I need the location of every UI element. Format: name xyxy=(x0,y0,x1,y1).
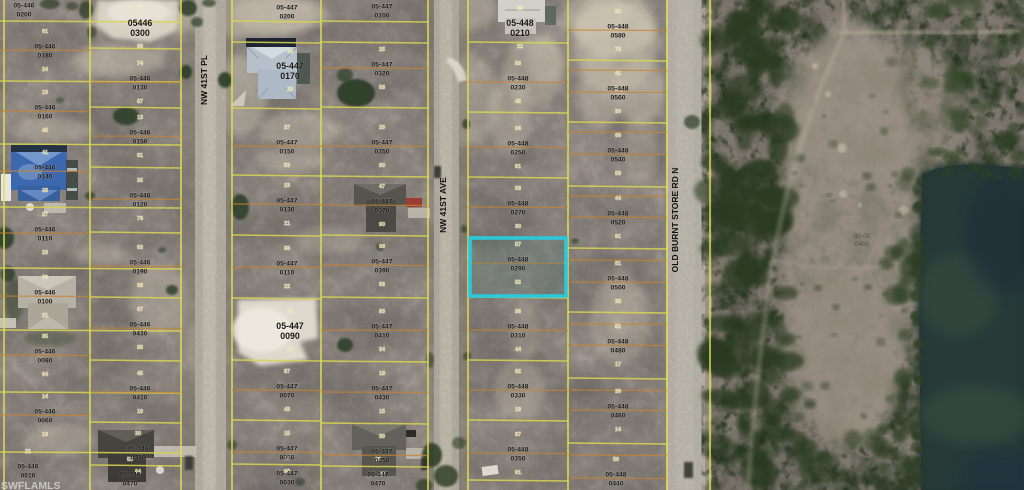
svg-text:38: 38 xyxy=(42,188,48,194)
svg-text:92: 92 xyxy=(515,369,521,375)
svg-text:69: 69 xyxy=(615,133,621,139)
svg-text:05-446: 05-446 xyxy=(129,322,150,329)
svg-text:39: 39 xyxy=(379,434,385,440)
svg-text:15: 15 xyxy=(284,431,290,437)
svg-text:18: 18 xyxy=(379,371,385,377)
svg-text:0450: 0450 xyxy=(374,458,389,465)
svg-text:0430: 0430 xyxy=(374,395,389,402)
svg-text:55: 55 xyxy=(515,280,521,286)
svg-text:0470: 0470 xyxy=(370,481,385,488)
svg-text:39: 39 xyxy=(137,44,143,50)
svg-text:56: 56 xyxy=(515,186,521,192)
svg-text:90: 90 xyxy=(379,222,385,228)
svg-text:39: 39 xyxy=(517,6,523,12)
svg-text:05-447: 05-447 xyxy=(276,471,297,478)
svg-text:78: 78 xyxy=(615,47,621,53)
svg-text:0210: 0210 xyxy=(510,28,530,38)
svg-text:0290: 0290 xyxy=(510,266,525,273)
svg-text:05-448: 05-448 xyxy=(607,404,628,411)
svg-text:05-446: 05-446 xyxy=(129,76,150,83)
svg-text:87: 87 xyxy=(515,432,521,438)
svg-text:20: 20 xyxy=(379,125,385,131)
svg-text:22: 22 xyxy=(517,44,523,50)
svg-text:05-448: 05-448 xyxy=(507,141,528,148)
svg-text:0150: 0150 xyxy=(132,139,147,146)
svg-text:58: 58 xyxy=(284,246,290,252)
svg-text:0090: 0090 xyxy=(280,331,300,341)
svg-text:05-448: 05-448 xyxy=(507,76,528,83)
svg-text:53: 53 xyxy=(284,163,290,169)
svg-text:57: 57 xyxy=(515,242,521,248)
svg-text:0080: 0080 xyxy=(37,358,52,365)
svg-text:0130: 0130 xyxy=(132,85,147,92)
svg-text:81: 81 xyxy=(615,261,621,267)
svg-text:0440: 0440 xyxy=(608,481,623,488)
svg-text:0110: 0110 xyxy=(280,270,295,277)
svg-text:41: 41 xyxy=(42,150,48,156)
svg-text:0540: 0540 xyxy=(610,157,625,164)
svg-text:30: 30 xyxy=(615,109,621,115)
svg-text:05-447: 05-447 xyxy=(371,140,392,147)
svg-text:05-447: 05-447 xyxy=(371,199,392,206)
svg-text:05-446: 05-446 xyxy=(34,105,55,112)
svg-text:SWFLAMLS: SWFLAMLS xyxy=(1,480,61,490)
svg-text:05-448: 05-448 xyxy=(507,324,528,331)
svg-text:83: 83 xyxy=(379,309,385,315)
svg-text:91: 91 xyxy=(515,164,521,170)
svg-text:0200: 0200 xyxy=(279,14,294,21)
svg-text:NW 41ST AVE: NW 41ST AVE xyxy=(438,177,448,233)
svg-text:79: 79 xyxy=(137,216,143,222)
svg-text:14: 14 xyxy=(615,427,622,433)
svg-text:05-446: 05-446 xyxy=(129,193,150,200)
svg-text:45: 45 xyxy=(137,371,143,377)
svg-text:54: 54 xyxy=(287,347,294,353)
svg-text:31: 31 xyxy=(615,9,621,15)
svg-text:17: 17 xyxy=(615,362,621,368)
svg-text:05-446: 05-446 xyxy=(34,165,55,172)
svg-text:05-446: 05-446 xyxy=(34,44,55,51)
svg-text:80: 80 xyxy=(379,163,385,169)
svg-text:0480: 0480 xyxy=(610,348,625,355)
svg-text:05-447: 05-447 xyxy=(276,321,303,331)
svg-text:87: 87 xyxy=(137,99,143,105)
svg-text:23: 23 xyxy=(42,250,48,256)
svg-text:0030: 0030 xyxy=(279,480,294,487)
svg-text:91: 91 xyxy=(42,29,48,35)
svg-text:74: 74 xyxy=(137,61,144,67)
svg-text:05-448: 05-448 xyxy=(607,148,628,155)
svg-text:89: 89 xyxy=(379,244,385,250)
svg-text:05-446: 05-446 xyxy=(119,472,140,479)
svg-text:0320: 0320 xyxy=(374,71,389,78)
svg-text:0170: 0170 xyxy=(280,71,300,81)
svg-text:91: 91 xyxy=(515,470,521,476)
svg-text:0070: 0070 xyxy=(279,393,294,400)
svg-text:05-447: 05-447 xyxy=(371,324,392,331)
svg-text:0110: 0110 xyxy=(38,236,53,243)
svg-text:68: 68 xyxy=(515,126,521,132)
svg-text:14: 14 xyxy=(42,394,49,400)
svg-text:22: 22 xyxy=(284,284,290,290)
svg-text:05-446: 05-446 xyxy=(34,227,55,234)
svg-text:0580: 0580 xyxy=(610,33,625,40)
svg-text:05446: 05446 xyxy=(128,18,153,28)
svg-text:0250: 0250 xyxy=(510,150,525,157)
svg-text:0230: 0230 xyxy=(510,85,525,92)
svg-text:05-447: 05-447 xyxy=(371,449,392,456)
svg-text:05-446: 05-446 xyxy=(127,446,148,453)
svg-text:05-447: 05-447 xyxy=(276,5,297,12)
svg-text:05-446: 05-446 xyxy=(13,3,34,10)
svg-text:0120: 0120 xyxy=(132,202,147,209)
svg-text:0200: 0200 xyxy=(16,12,31,19)
svg-text:05-446: 05-446 xyxy=(34,349,55,356)
svg-text:0140: 0140 xyxy=(37,174,52,181)
svg-text:39: 39 xyxy=(615,389,621,395)
svg-text:05-447: 05-447 xyxy=(371,4,392,11)
svg-text:0390: 0390 xyxy=(374,268,389,275)
svg-text:30: 30 xyxy=(515,224,521,230)
svg-text:0410: 0410 xyxy=(374,333,389,340)
svg-text:21: 21 xyxy=(42,313,48,319)
svg-text:0500: 0500 xyxy=(610,285,625,292)
svg-text:85: 85 xyxy=(42,334,48,340)
svg-text:05-446: 05-446 xyxy=(34,290,55,297)
svg-text:13: 13 xyxy=(42,90,48,96)
svg-text:0100: 0100 xyxy=(374,13,389,20)
svg-text:05-448: 05-448 xyxy=(507,257,528,264)
svg-text:37: 37 xyxy=(284,125,290,131)
svg-text:10: 10 xyxy=(137,409,143,415)
svg-text:0050: 0050 xyxy=(279,455,294,462)
svg-text:05-447: 05-447 xyxy=(371,386,392,393)
svg-text:05-447: 05-447 xyxy=(276,140,297,147)
svg-text:0270: 0270 xyxy=(510,210,525,217)
svg-text:05-446: 05-446 xyxy=(129,386,150,393)
svg-text:58: 58 xyxy=(379,85,385,91)
svg-text:50: 50 xyxy=(613,457,619,463)
svg-text:85: 85 xyxy=(137,345,143,351)
svg-text:27: 27 xyxy=(42,212,48,218)
svg-text:0430: 0430 xyxy=(132,331,147,338)
svg-text:21: 21 xyxy=(284,221,290,227)
svg-text:87: 87 xyxy=(284,369,290,375)
svg-text:23: 23 xyxy=(284,183,290,189)
svg-text:15: 15 xyxy=(379,409,385,415)
svg-text:05-448: 05-448 xyxy=(507,201,528,208)
svg-text:05-447: 05-447 xyxy=(367,472,388,479)
svg-text:58: 58 xyxy=(515,61,521,67)
svg-text:45: 45 xyxy=(42,128,48,134)
svg-text:21: 21 xyxy=(25,449,31,455)
svg-text:05-447: 05-447 xyxy=(276,61,303,71)
svg-text:0060: 0060 xyxy=(37,418,52,425)
svg-text:0410: 0410 xyxy=(132,395,147,402)
svg-text:00-00: 00-00 xyxy=(854,233,871,240)
svg-text:0330: 0330 xyxy=(510,393,525,400)
svg-text:58: 58 xyxy=(615,171,621,177)
svg-text:13: 13 xyxy=(137,115,143,121)
svg-text:05-447: 05-447 xyxy=(276,261,297,268)
svg-text:0400: 0400 xyxy=(855,241,870,248)
svg-text:OLD BURNT STORE RD N: OLD BURNT STORE RD N xyxy=(670,168,680,273)
svg-text:0180: 0180 xyxy=(37,53,52,60)
svg-text:0100: 0100 xyxy=(37,299,52,306)
svg-text:05-448: 05-448 xyxy=(607,86,628,93)
svg-text:64: 64 xyxy=(42,372,49,378)
svg-text:38: 38 xyxy=(615,299,621,305)
svg-text:0130: 0130 xyxy=(279,207,294,214)
svg-text:05-448: 05-448 xyxy=(507,384,528,391)
svg-text:05-447: 05-447 xyxy=(276,198,297,205)
svg-text:0520: 0520 xyxy=(610,220,625,227)
svg-text:05-448: 05-448 xyxy=(506,18,533,28)
svg-text:0310: 0310 xyxy=(510,333,525,340)
svg-text:05-446: 05-446 xyxy=(129,260,150,267)
svg-text:0300: 0300 xyxy=(130,28,150,38)
svg-text:0150: 0150 xyxy=(279,149,294,156)
svg-text:0370: 0370 xyxy=(374,208,389,215)
svg-text:43: 43 xyxy=(284,407,290,413)
svg-text:56: 56 xyxy=(379,282,385,288)
svg-text:0010: 0010 xyxy=(20,473,35,480)
svg-text:79: 79 xyxy=(42,275,48,281)
svg-text:91: 91 xyxy=(615,234,621,240)
svg-text:05-446: 05-446 xyxy=(129,130,150,137)
svg-text:24: 24 xyxy=(42,67,49,73)
svg-text:13: 13 xyxy=(42,432,48,438)
svg-text:37: 37 xyxy=(137,6,143,12)
svg-text:0560: 0560 xyxy=(610,95,625,102)
svg-text:0450: 0450 xyxy=(130,455,145,462)
svg-text:29: 29 xyxy=(287,87,293,93)
svg-text:47: 47 xyxy=(379,184,385,190)
svg-text:35: 35 xyxy=(137,178,143,184)
svg-text:0460: 0460 xyxy=(610,413,625,420)
svg-text:25: 25 xyxy=(379,47,385,53)
svg-text:67: 67 xyxy=(137,307,143,313)
svg-text:34: 34 xyxy=(379,347,386,353)
svg-text:36: 36 xyxy=(515,309,521,315)
svg-text:05-447: 05-447 xyxy=(371,62,392,69)
svg-text:44: 44 xyxy=(615,196,622,202)
svg-text:0470: 0470 xyxy=(122,481,137,488)
svg-text:05-447: 05-447 xyxy=(371,259,392,266)
svg-text:0350: 0350 xyxy=(374,149,389,156)
svg-text:05-448: 05-448 xyxy=(607,339,628,346)
svg-text:05-446: 05-446 xyxy=(17,464,38,471)
svg-text:05-448: 05-448 xyxy=(607,276,628,283)
svg-text:05-448: 05-448 xyxy=(607,211,628,218)
svg-text:0160: 0160 xyxy=(37,114,52,121)
svg-text:19: 19 xyxy=(515,407,521,413)
svg-text:45: 45 xyxy=(287,49,293,55)
svg-text:NW 41ST PL: NW 41ST PL xyxy=(199,55,209,105)
svg-text:0190: 0190 xyxy=(132,269,147,276)
svg-text:05-447: 05-447 xyxy=(276,384,297,391)
svg-text:44: 44 xyxy=(515,347,522,353)
svg-text:05-448: 05-448 xyxy=(607,24,628,31)
svg-text:81: 81 xyxy=(137,153,143,159)
svg-text:45: 45 xyxy=(515,99,521,105)
svg-text:05-448: 05-448 xyxy=(605,472,626,479)
svg-text:38: 38 xyxy=(137,283,143,289)
svg-text:30: 30 xyxy=(135,431,141,437)
svg-text:05-448: 05-448 xyxy=(507,447,528,454)
svg-text:0350: 0350 xyxy=(510,456,525,463)
svg-text:55: 55 xyxy=(287,309,293,315)
svg-text:05-447: 05-447 xyxy=(276,446,297,453)
svg-text:41: 41 xyxy=(615,71,621,77)
svg-text:63: 63 xyxy=(137,245,143,251)
svg-text:05-446: 05-446 xyxy=(34,409,55,416)
svg-text:51: 51 xyxy=(615,324,621,330)
